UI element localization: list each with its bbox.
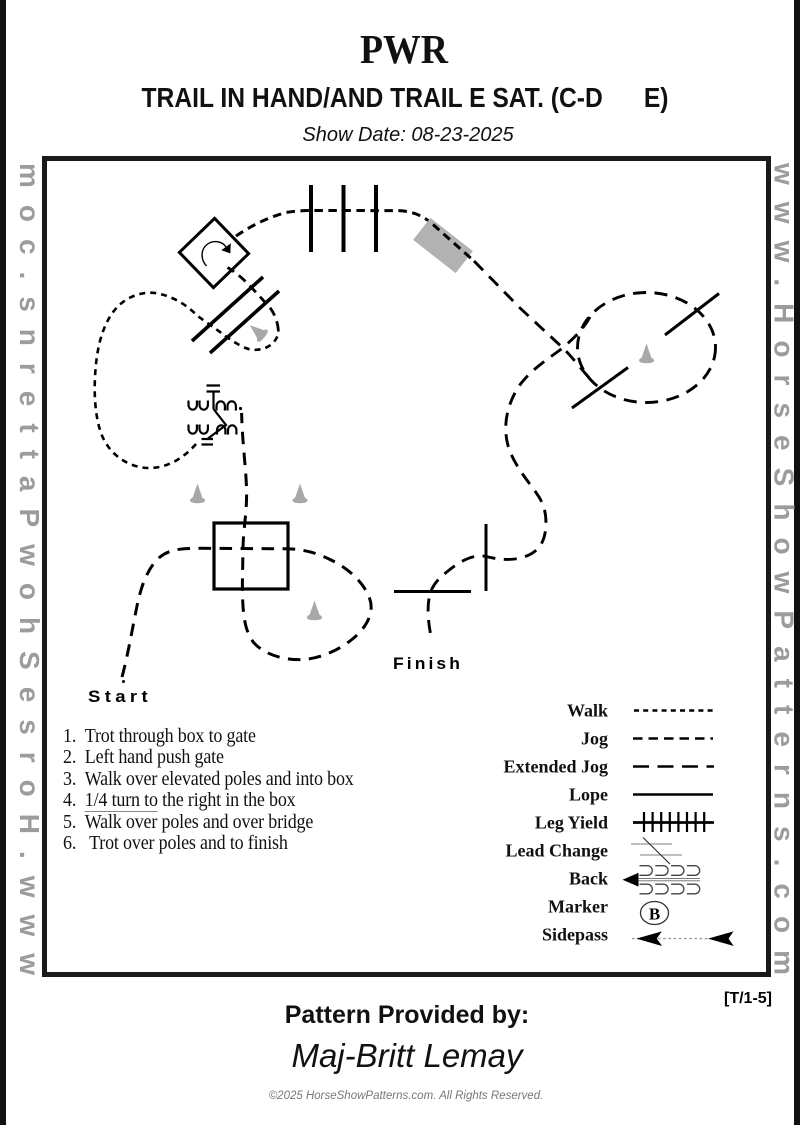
svg-text:Finish: Finish	[393, 654, 463, 673]
svg-text:moc.snrettaPwohSesroH.www: moc.snrettaPwohSesroH.www	[14, 163, 45, 991]
svg-text:Lead Change: Lead Change	[505, 841, 608, 861]
svg-text:Extended Jog: Extended Jog	[503, 757, 608, 777]
svg-text:Lope: Lope	[569, 785, 608, 805]
svg-text:Start: Start	[88, 687, 152, 706]
svg-text:Back: Back	[569, 869, 608, 889]
svg-text:www.HorseShowPatterns.com: www.HorseShowPatterns.com	[769, 162, 800, 991]
svg-text:Walk: Walk	[567, 701, 608, 721]
svg-text:Jog: Jog	[581, 729, 608, 749]
svg-text:Sidepass: Sidepass	[542, 925, 608, 945]
svg-text:B: B	[649, 905, 660, 924]
svg-text:Marker: Marker	[548, 897, 608, 917]
svg-text:Leg Yield: Leg Yield	[535, 813, 608, 833]
